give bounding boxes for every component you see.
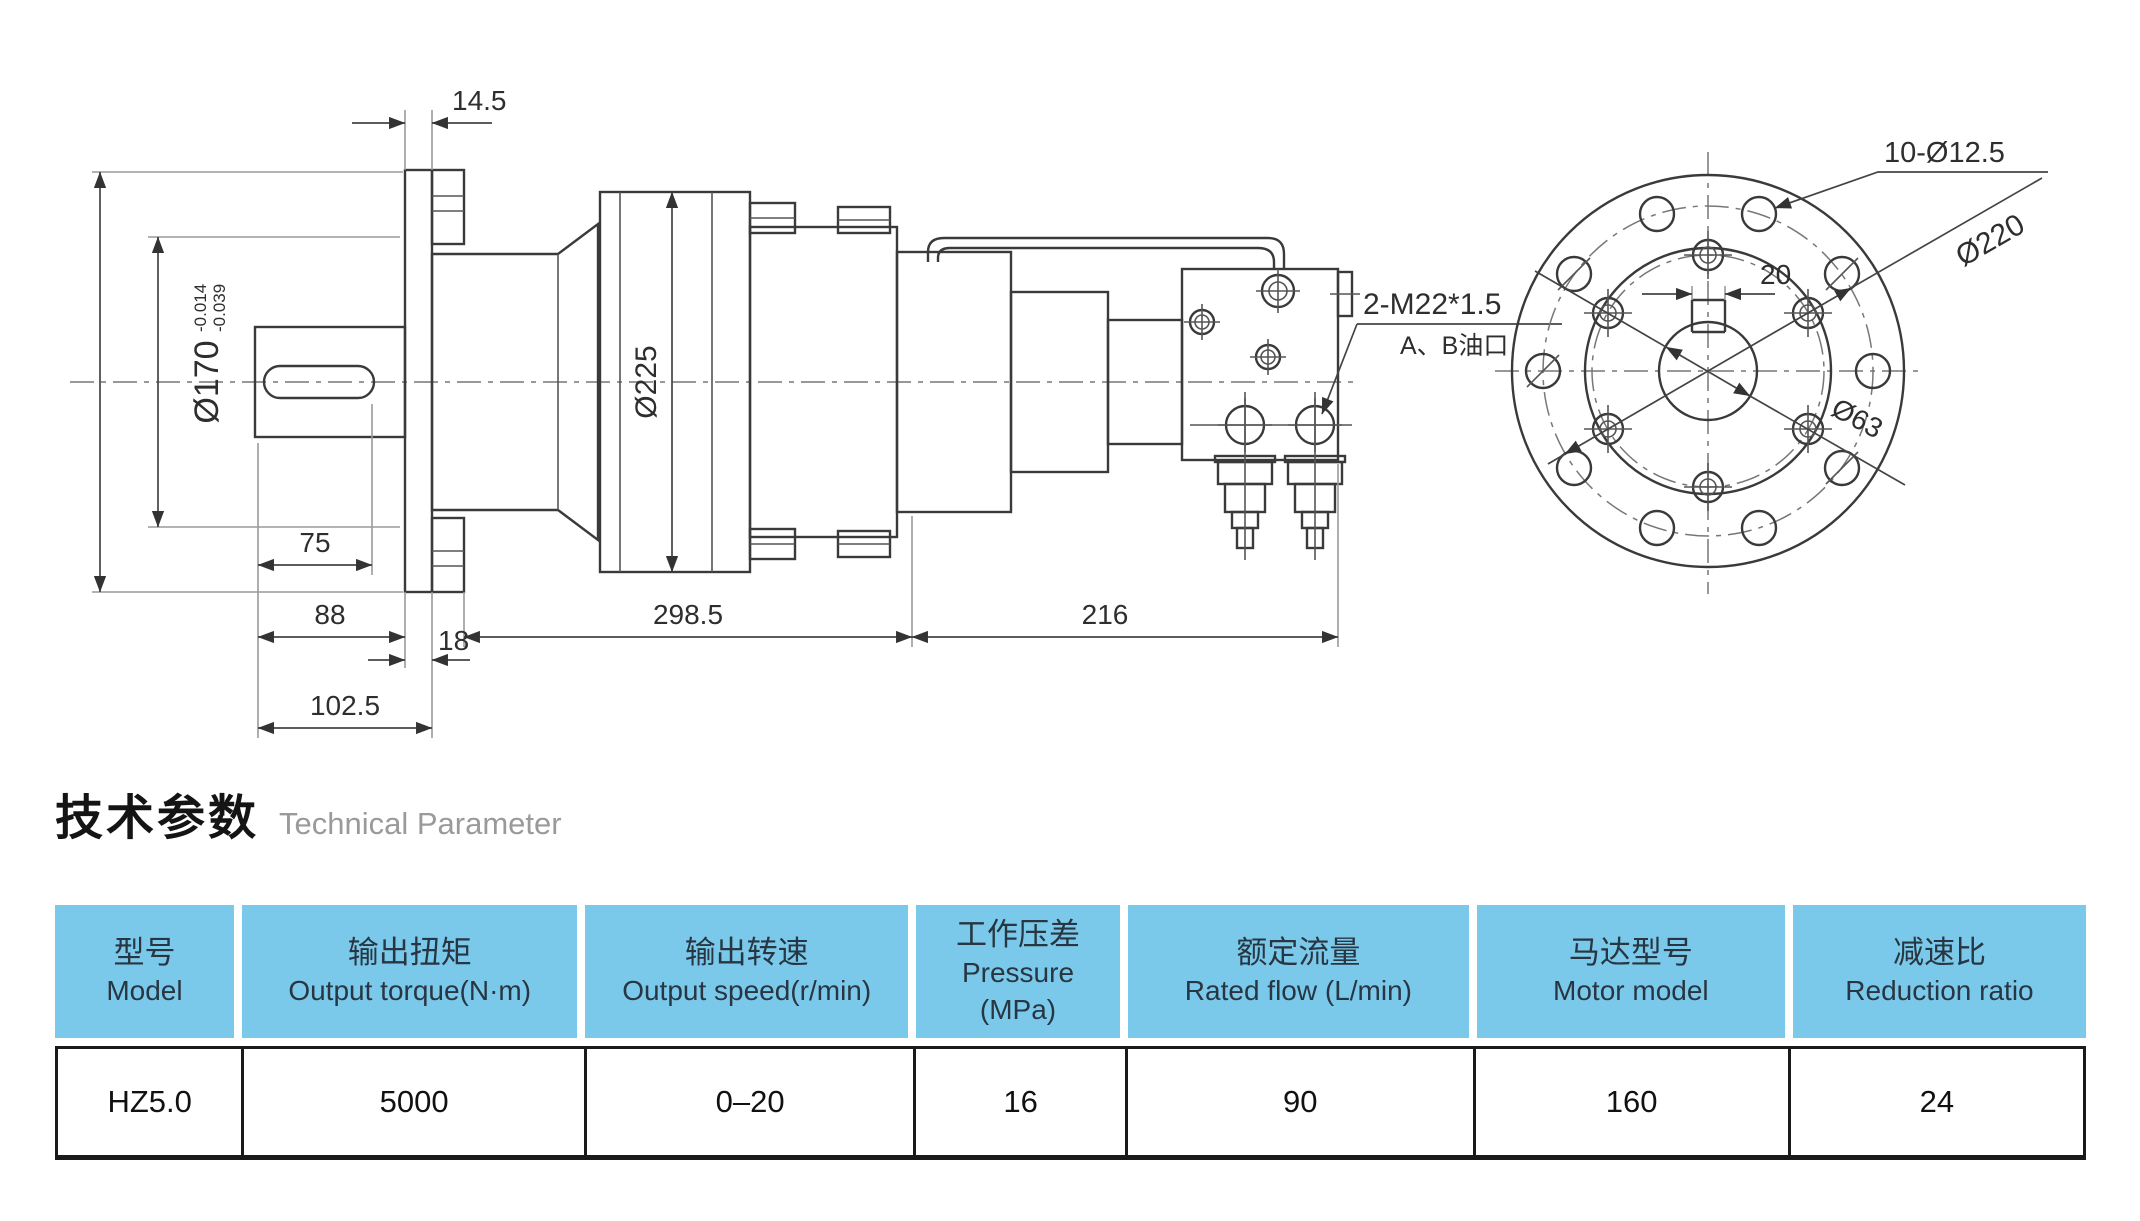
- svg-text:Ø220: Ø220: [1950, 208, 2030, 273]
- svg-text:-0.039: -0.039: [210, 284, 229, 332]
- dim-label-bolt-holes: 10-Ø12.5: [1884, 137, 2005, 169]
- flange-tab-bottom: [432, 518, 464, 592]
- cell-motor-model: 160: [1476, 1049, 1791, 1155]
- header-reduction-ratio: 减速比 Reduction ratio: [1793, 905, 2086, 1038]
- pipe-outer: [928, 238, 1284, 269]
- dim-label-shaft-dia: Ø170 -0.014 -0.039: [188, 284, 229, 424]
- cell-reduction-ratio: 24: [1791, 1049, 2083, 1155]
- svg-text:Ø170: Ø170: [188, 340, 226, 423]
- dim-label-bore: Ø63: [1827, 392, 1888, 444]
- flange-tab-top: [432, 170, 464, 244]
- fitting-right: [1285, 392, 1345, 560]
- svg-text:Ø63: Ø63: [1827, 392, 1888, 444]
- dim-label-18: 18: [438, 625, 469, 656]
- dim-label-body-dia: Ø225: [630, 345, 663, 418]
- section-title: 技术参数 Technical Parameter: [55, 778, 562, 848]
- section-title-zh: 技术参数: [55, 778, 259, 848]
- cell-rated-flow: 90: [1128, 1049, 1476, 1155]
- side-view: 14.5 Ø170 -0.014 -0.039 Ø225 75 88 298.5…: [70, 85, 1562, 738]
- section-title-en: Technical Parameter: [279, 806, 562, 842]
- dim-label-bolt-circle: Ø220: [1950, 208, 2030, 273]
- end-view: 20: [1495, 137, 2048, 594]
- dim-label-298-5: 298.5: [653, 599, 723, 630]
- header-model: 型号 Model: [55, 905, 242, 1038]
- header-output-speed: 输出转速 Output speed(r/min): [585, 905, 915, 1038]
- svg-text:Ø225: Ø225: [630, 345, 663, 418]
- dim-label-port-thread: 2-M22*1.5: [1363, 288, 1501, 321]
- cell-model: HZ5.0: [58, 1049, 244, 1155]
- header-rated-flow: 额定流量 Rated flow (L/min): [1128, 905, 1477, 1038]
- header-output-torque: 输出扭矩 Output torque(N·m): [242, 905, 586, 1038]
- dim-label-14-5: 14.5: [452, 85, 507, 116]
- dim-label-216: 216: [1082, 599, 1129, 630]
- header-pressure: 工作压差 Pressure (MPa): [916, 905, 1128, 1038]
- fitting-left: [1215, 392, 1275, 560]
- technical-parameter-table: 型号 Model 输出扭矩 Output torque(N·m) 输出转速 Ou…: [55, 905, 2086, 1160]
- dim-label-102-5: 102.5: [310, 690, 380, 721]
- cell-output-torque: 5000: [244, 1049, 587, 1155]
- dim-label-88: 88: [314, 599, 345, 630]
- dim-label-port-name: A、B油口: [1400, 332, 1508, 360]
- technical-drawing: 14.5 Ø170 -0.014 -0.039 Ø225 75 88 298.5…: [0, 0, 2140, 770]
- table-data-row: HZ5.0 5000 0–20 16 90 160 24: [55, 1046, 2086, 1160]
- cell-pressure: 16: [916, 1049, 1128, 1155]
- svg-text:-0.014: -0.014: [191, 284, 210, 332]
- dim-label-keyway-20: 20: [1760, 259, 1791, 290]
- table-header-row: 型号 Model 输出扭矩 Output torque(N·m) 输出转速 Ou…: [55, 905, 2086, 1038]
- mounting-flange: [405, 170, 432, 592]
- cell-output-speed: 0–20: [587, 1049, 916, 1155]
- dim-label-75: 75: [299, 527, 330, 558]
- header-motor-model: 马达型号 Motor model: [1477, 905, 1793, 1038]
